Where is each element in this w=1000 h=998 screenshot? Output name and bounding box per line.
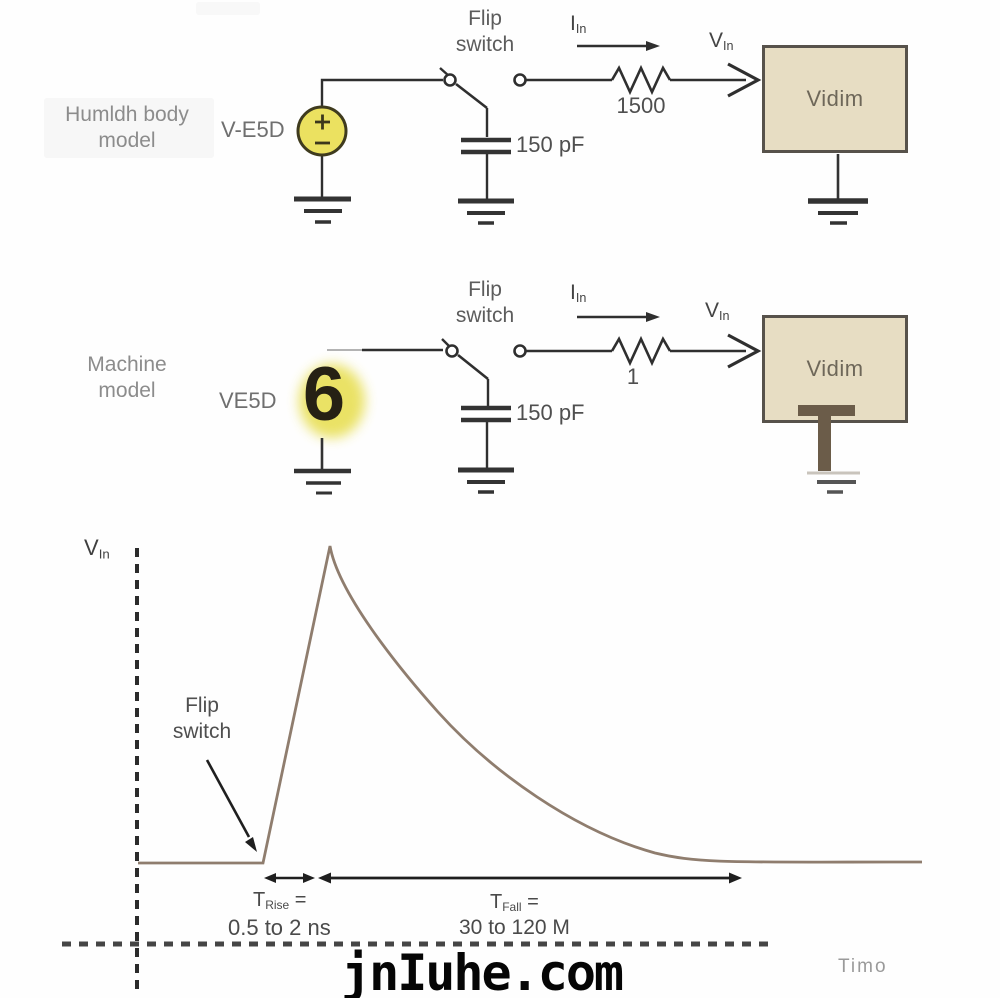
t-rise-value: 0.5 to 2 ns [228,915,331,941]
hbm-capacitor-value: 150 pF [516,132,585,158]
hbm-title: Humldh body model [42,102,212,154]
mm-device-label: Vidim [806,356,863,382]
mm-current-arrow-icon [577,312,660,322]
hbm-resistor-value: 1500 [611,93,671,119]
hbm-voltage-label: VIn [709,29,734,53]
mm-title: Machine model [42,352,212,404]
t-fall-span-arrow [318,873,742,884]
mm-capacitor-value: 150 pF [516,400,585,426]
overlay-t-bar-horizontal [798,405,855,416]
hbm-capacitor-icon [461,140,511,152]
mm-resistor-icon [612,339,670,363]
t-rise-span-arrow [264,873,315,883]
mm-device-ground-icon [807,473,860,492]
graph-flip-switch-annotation: Flip switch [152,693,252,745]
waveform-curve [138,546,922,863]
hbm-resistor-icon [612,68,670,92]
overlay-t-bar-vertical [818,416,831,471]
mm-source-label: VE5D [219,388,276,414]
mm-current-label: IIn [570,281,586,305]
mm-capacitor-icon [461,408,511,420]
t-rise-label: TRise = [253,889,306,912]
hbm-flip-switch-icon [440,68,526,108]
esd-models-figure: Vidim Vidim Humldh body model V-E5D Flip… [0,0,1000,998]
mm-flip-switch-label: Flip switch [440,277,530,329]
hbm-capacitor-ground-icon [458,201,514,223]
hbm-device-label: Vidim [806,86,863,112]
mm-capacitor-ground-icon [458,470,514,492]
graph-x-axis-label: Timo [838,956,888,978]
mm-resistor-value: 1 [611,364,655,390]
hbm-voltage-source-icon [298,107,346,155]
mm-flip-switch-icon [442,339,526,379]
t-fall-value: 30 to 120 M [459,916,570,940]
hbm-device-ground-icon [808,154,868,223]
hbm-device-box: Vidim [762,45,908,153]
mm-source-ground-icon [294,438,351,493]
graph-axes [62,548,770,996]
hbm-source-ground-icon [294,199,351,222]
watermark-text: jnIuhe.com [341,944,622,998]
hbm-source-label: V-E5D [221,117,285,143]
hbm-flip-switch-label: Flip switch [440,6,530,58]
mm-voltage-label: VIn [705,299,730,323]
hbm-current-label: IIn [570,12,586,36]
t-fall-label: TFall = [490,891,539,914]
flip-switch-pointer-arrow [207,760,257,852]
hbm-current-arrow-icon [577,41,660,51]
graph-y-axis-label: VIn [84,535,110,561]
mm-source-digit: 6 [292,357,356,433]
